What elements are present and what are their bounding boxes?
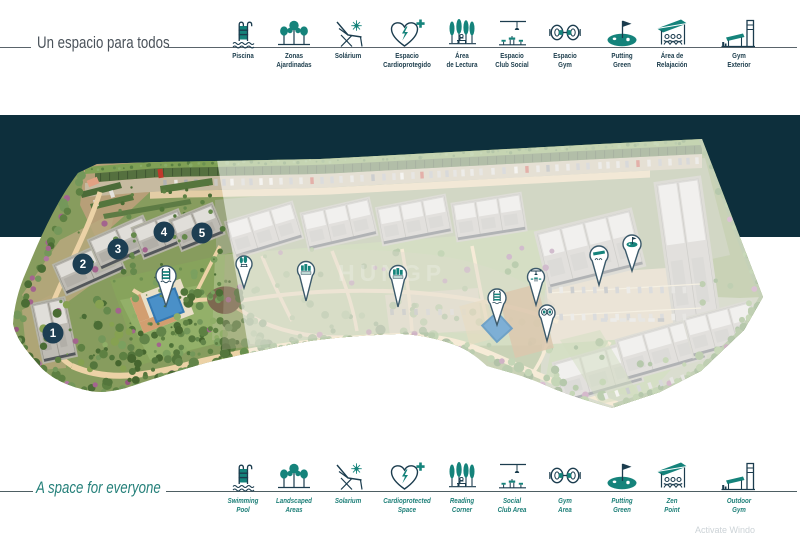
- svg-text:1: 1: [50, 328, 57, 340]
- svg-text:5: 5: [199, 228, 206, 240]
- svg-text:2: 2: [80, 259, 86, 271]
- svg-text:3: 3: [115, 244, 121, 256]
- svg-text:4: 4: [161, 227, 168, 239]
